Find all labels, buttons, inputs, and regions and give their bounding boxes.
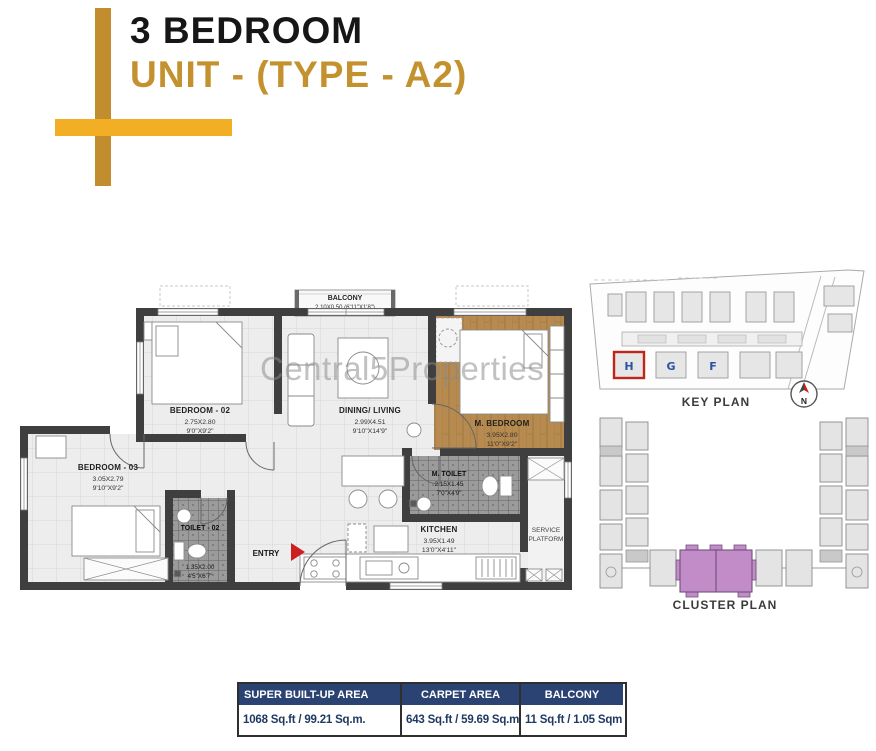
compass-north-label: N bbox=[801, 396, 807, 406]
wc-tank-icon bbox=[500, 476, 512, 496]
bedroom2-label: BEDROOM - 02 bbox=[170, 406, 231, 415]
wash-basin-icon bbox=[407, 423, 421, 437]
balcony-label: BALCONY bbox=[328, 295, 363, 302]
service-platform-label-2: PLATFORM bbox=[529, 536, 564, 543]
dining-living-dims-m: 2.99X4.51 bbox=[355, 419, 386, 426]
master-toilet-dims-m: 2.15X1.45 bbox=[435, 481, 464, 488]
page-canvas: 3 BEDROOM UNIT - (TYPE - A2) bbox=[0, 0, 876, 751]
area-table: SUPER BUILT-UP AREA 1068 Sq.ft / 99.21 S… bbox=[237, 682, 627, 737]
watermark-text: Central5Properties bbox=[260, 350, 544, 388]
kitchen-dims-ft: 13'0"X4'11" bbox=[422, 547, 457, 554]
wc-bowl-icon bbox=[188, 544, 206, 558]
area-table-col-balcony: BALCONY 11 Sq.ft / 1.05 Sqm bbox=[519, 684, 623, 735]
floor-plan-drawing: BALCONY 2.10X0.50 (6'11"X1'8") bbox=[8, 280, 580, 610]
key-plan-drawing: H G F KEY PLAN N bbox=[578, 262, 874, 420]
area-table-value: 643 Sq.ft / 59.69 Sq.m bbox=[402, 705, 519, 735]
cluster-plan-drawing: CLUSTER PLAN bbox=[592, 410, 876, 615]
cluster-plan-caption: CLUSTER PLAN bbox=[673, 598, 778, 612]
stool-icon bbox=[36, 436, 66, 458]
brand-cross-vertical-bar bbox=[95, 8, 111, 186]
area-table-col-super-builtup: SUPER BUILT-UP AREA 1068 Sq.ft / 99.21 S… bbox=[239, 684, 400, 735]
kitchen-dims-m: 3.95X1.49 bbox=[424, 538, 455, 545]
master-bedroom-dims-ft: 11'0"X9'2" bbox=[487, 441, 518, 448]
cluster-plan: CLUSTER PLAN bbox=[592, 410, 876, 615]
area-table-header: SUPER BUILT-UP AREA bbox=[239, 684, 400, 705]
building-block bbox=[740, 352, 770, 378]
key-plan: H G F KEY PLAN N bbox=[578, 262, 874, 420]
pillow-icon bbox=[136, 510, 154, 552]
master-toilet-label: M. TOILET bbox=[432, 471, 467, 478]
area-table-header: CARPET AREA bbox=[402, 684, 519, 705]
page-subtitle: UNIT - (TYPE - A2) bbox=[130, 54, 467, 96]
chair-icon bbox=[349, 490, 367, 508]
bedroom2-dims-m: 2.75X2.80 bbox=[185, 419, 216, 426]
master-toilet-dims-ft: 7'0"X4'9" bbox=[436, 490, 461, 497]
wc-bowl-icon bbox=[482, 476, 498, 496]
pillow-icon bbox=[156, 326, 178, 356]
sink-basin-icon bbox=[366, 561, 392, 575]
shaft-icon bbox=[410, 500, 417, 507]
area-table-header: BALCONY bbox=[521, 684, 623, 705]
faucet-icon bbox=[399, 563, 409, 573]
brand-cross-horizontal-bar bbox=[55, 119, 232, 136]
area-table-col-carpet: CARPET AREA 643 Sq.ft / 59.69 Sq.m bbox=[400, 684, 519, 735]
master-bedroom-dims-m: 3.95X2.80 bbox=[487, 432, 518, 439]
bedroom3-label: BEDROOM - 03 bbox=[78, 463, 139, 472]
compass-icon: N bbox=[791, 381, 817, 407]
master-bedroom-label: M. BEDROOM bbox=[475, 419, 530, 428]
floor-plan: BALCONY 2.10X0.50 (6'11"X1'8") bbox=[8, 280, 580, 610]
area-table-value: 1068 Sq.ft / 99.21 Sq.m. bbox=[239, 705, 400, 735]
highlighted-cluster-units bbox=[676, 545, 756, 597]
dashed-unit-icon bbox=[348, 524, 366, 552]
building-block bbox=[776, 352, 802, 378]
fridge-icon bbox=[374, 526, 408, 552]
toilet2-label: TOILET - 02 bbox=[181, 525, 220, 532]
building-g-label: G bbox=[666, 360, 675, 373]
bedroom3-dims-m: 3.05X2.79 bbox=[93, 476, 124, 483]
bedroom2-dims-ft: 9'0"X9'2" bbox=[186, 428, 214, 435]
toilet2-dims-ft: 4'5"X6'7" bbox=[187, 573, 212, 580]
nightstand-icon bbox=[144, 322, 152, 340]
wc-tank-icon bbox=[174, 542, 184, 560]
kitchen-label: KITCHEN bbox=[421, 525, 458, 534]
wash-basin-icon bbox=[417, 497, 431, 511]
wash-basin-icon bbox=[177, 509, 191, 523]
dining-living-label: DINING/ LIVING bbox=[339, 406, 401, 415]
stove-icon bbox=[304, 557, 346, 579]
page-title: 3 BEDROOM bbox=[130, 10, 363, 52]
area-table-value: 11 Sq.ft / 1.05 Sqm bbox=[521, 705, 623, 735]
dining-table-icon bbox=[342, 456, 404, 486]
building-f-label: F bbox=[709, 360, 717, 373]
bedroom3-dims-ft: 9'10"X9'2" bbox=[93, 485, 124, 492]
building-h-label: H bbox=[624, 360, 633, 373]
service-platform-label-1: SERVICE bbox=[532, 527, 561, 534]
shaft-icon bbox=[174, 570, 181, 577]
key-plan-caption: KEY PLAN bbox=[682, 395, 750, 409]
dining-living-dims-ft: 9'10"X14'9" bbox=[353, 428, 388, 435]
chair-icon bbox=[379, 490, 397, 508]
toilet2-dims-m: 1.35X2.00 bbox=[186, 564, 215, 571]
entry-label: ENTRY bbox=[253, 549, 280, 558]
